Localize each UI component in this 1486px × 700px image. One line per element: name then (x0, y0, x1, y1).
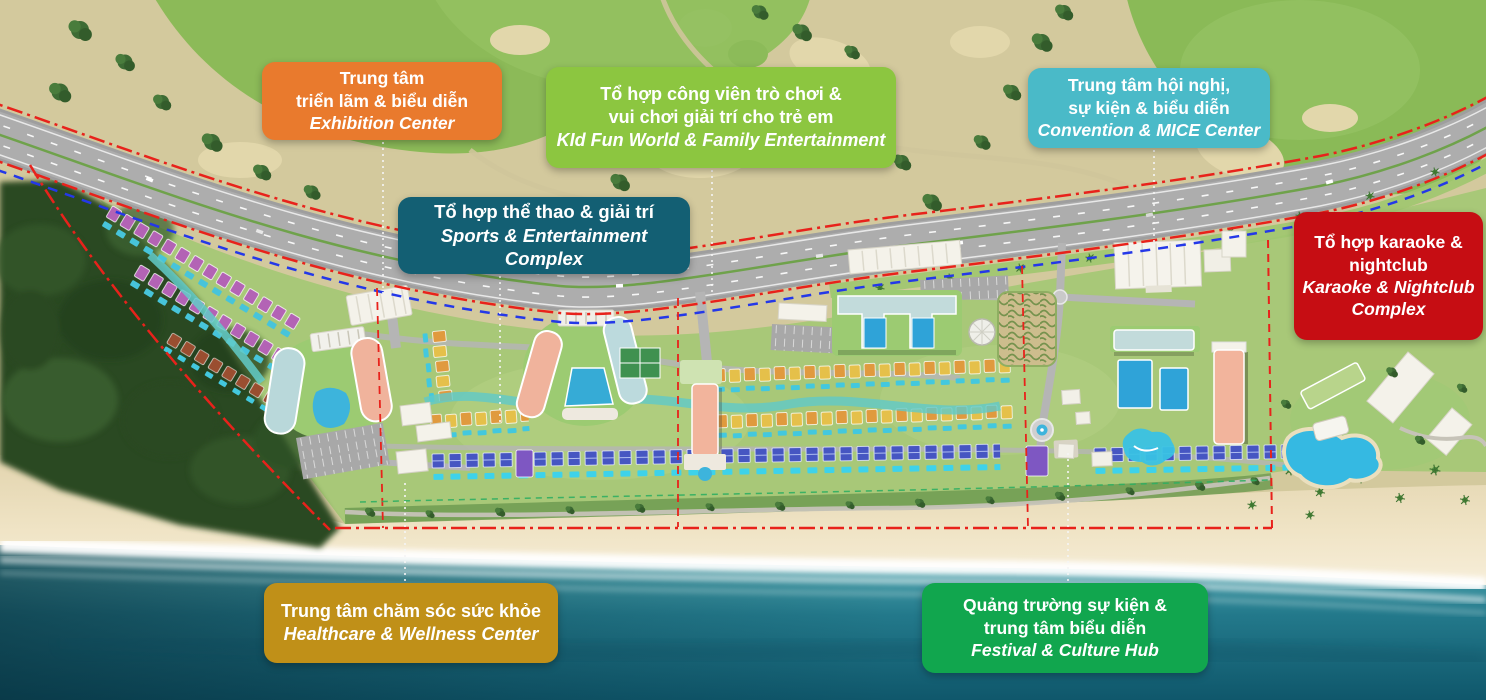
label-text-vi: trung tâm biểu diễn (984, 617, 1146, 639)
label-text-vi: Tổ hợp thể thao & giải trí (434, 200, 654, 224)
dome-pavilion (969, 319, 995, 345)
label-text-en: Healthcare & Wellness Center (284, 623, 539, 646)
maze-garden (998, 292, 1056, 366)
label-festival-culture-hub: Quảng trường sự kiện & trung tâm biểu di… (922, 583, 1208, 673)
e-hotel (832, 290, 962, 356)
label-kid-fun-world: Tổ hợp công viên trò chơi & vui chơi giả… (546, 67, 896, 168)
label-text-vi: nightclub (1349, 254, 1428, 276)
label-text-en: Convention & MICE Center (1038, 119, 1261, 141)
label-exhibition-center: Trung tâm triển lãm & biểu diễn Exhibiti… (262, 62, 502, 140)
label-text-vi: Quảng trường sự kiện & (963, 594, 1167, 616)
service-building (771, 303, 834, 353)
label-text-en: Festival & Culture Hub (971, 639, 1159, 661)
label-text-vi: vui chơi giải trí cho trẻ em (609, 106, 834, 129)
label-text-vi: sự kiện & biểu diễn (1068, 97, 1229, 119)
label-text-vi: Trung tâm hội nghị, (1068, 74, 1230, 96)
label-text-vi: Trung tâm chăm sóc sức khỏe (281, 600, 541, 623)
label-text-en: Karaoke & Nightclub (1302, 276, 1474, 298)
label-text-vi: Tổ hợp công viên trò chơi & (600, 83, 842, 106)
label-karaoke-nightclub-complex: Tổ hợp karaoke & nightclub Karaoke & Nig… (1294, 212, 1483, 340)
tennis-courts (620, 348, 660, 378)
masterplan-map: Trung tâm triển lãm & biểu diễn Exhibiti… (0, 0, 1486, 700)
label-sports-entertainment-complex: Tổ hợp thể thao & giải trí Sports & Ente… (398, 197, 690, 274)
label-text-vi: Trung tâm (340, 67, 425, 89)
label-text-en: Sports & Entertainment Complex (406, 224, 682, 271)
label-text-en: Exhibition Center (310, 112, 455, 134)
label-text-vi: Tổ hợp karaoke & (1314, 231, 1463, 253)
label-text-en: Complex (1352, 298, 1426, 320)
label-convention-mice-center: Trung tâm hội nghị, sự kiện & biểu diễn … (1028, 68, 1270, 148)
label-text-en: KId Fun World & Family Entertainment (557, 129, 886, 152)
label-healthcare-wellness-center: Trung tâm chăm sóc sức khỏe Healthcare &… (264, 583, 558, 663)
label-text-vi: triển lãm & biểu diễn (296, 90, 468, 112)
